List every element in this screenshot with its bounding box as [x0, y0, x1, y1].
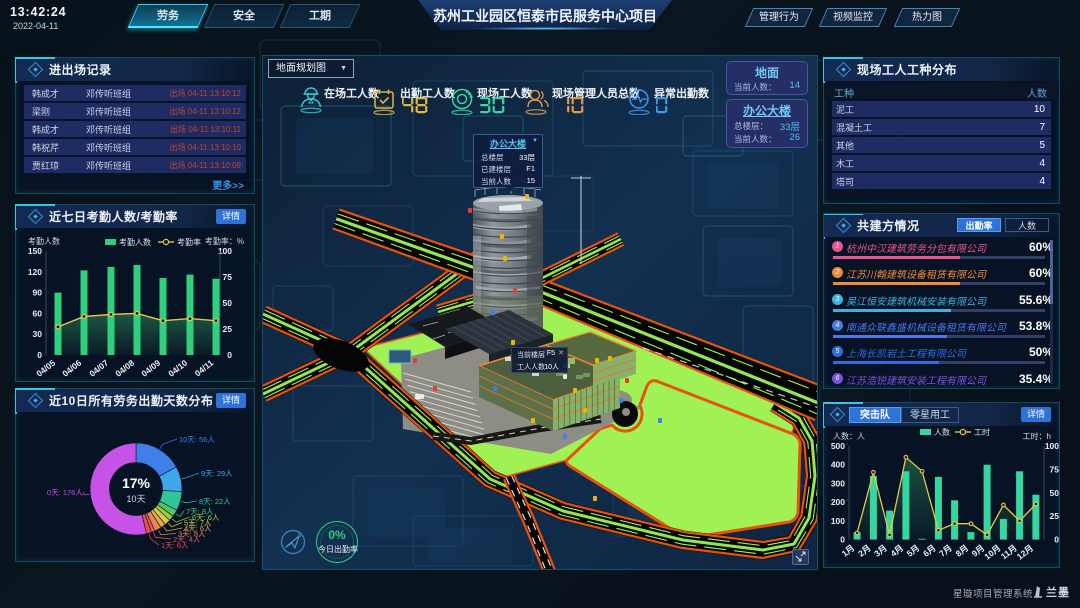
svg-text:1天: 6人: 1天: 6人 — [161, 541, 189, 550]
svg-text:0: 0 — [37, 350, 42, 360]
svg-text:人数：人: 人数：人 — [833, 431, 865, 441]
svg-text:400: 400 — [831, 460, 845, 470]
svg-text:考勤人数: 考勤人数 — [119, 237, 151, 247]
svg-text:50: 50 — [1050, 488, 1059, 498]
svg-text:考勤人数: 考勤人数 — [28, 236, 60, 246]
svg-text:04/06: 04/06 — [60, 358, 83, 379]
svg-text:7月: 7月 — [937, 543, 954, 559]
svg-text:120: 120 — [28, 267, 42, 277]
svg-text:0: 0 — [227, 350, 232, 360]
svg-text:9天: 29人: 9天: 29人 — [201, 469, 233, 478]
svg-text:0: 0 — [840, 535, 845, 545]
svg-text:0天: 176人: 0天: 176人 — [47, 488, 83, 497]
svg-text:150: 150 — [28, 246, 42, 256]
svg-text:12月: 12月 — [1015, 543, 1035, 562]
svg-text:100: 100 — [831, 516, 845, 526]
svg-text:8月: 8月 — [954, 543, 971, 559]
svg-text:300: 300 — [831, 478, 845, 488]
svg-text:人数: 人数 — [934, 427, 950, 437]
svg-text:5月: 5月 — [905, 543, 922, 559]
svg-text:0: 0 — [1054, 535, 1059, 545]
svg-text:200: 200 — [831, 497, 845, 507]
svg-text:100: 100 — [1045, 441, 1059, 451]
svg-text:04/07: 04/07 — [87, 358, 110, 379]
svg-text:6月: 6月 — [921, 543, 938, 559]
svg-text:30: 30 — [33, 329, 43, 339]
svg-text:考勤率：%: 考勤率：% — [205, 236, 244, 246]
svg-text:50: 50 — [223, 298, 233, 308]
svg-text:10天: 56人: 10天: 56人 — [179, 435, 215, 444]
svg-text:10天: 10天 — [126, 494, 145, 504]
svg-text:60: 60 — [33, 308, 43, 318]
svg-text:04/05: 04/05 — [34, 358, 57, 379]
svg-text:1月: 1月 — [840, 543, 857, 559]
svg-text:04/11: 04/11 — [193, 358, 216, 379]
svg-text:8天: 22人: 8天: 22人 — [199, 497, 231, 506]
svg-text:工时: 工时 — [974, 427, 990, 437]
svg-text:2月: 2月 — [856, 543, 873, 559]
svg-text:工时：h: 工时：h — [1023, 431, 1051, 441]
svg-text:75: 75 — [1050, 464, 1059, 474]
svg-text:4月: 4月 — [889, 543, 906, 559]
svg-text:考勤率: 考勤率 — [177, 237, 201, 247]
svg-text:500: 500 — [831, 441, 845, 451]
svg-text:04/10: 04/10 — [166, 358, 189, 379]
svg-text:N: N — [298, 533, 302, 539]
svg-text:25: 25 — [1050, 511, 1059, 521]
svg-text:04/08: 04/08 — [113, 358, 136, 379]
svg-text:3月: 3月 — [872, 543, 889, 559]
svg-text:75: 75 — [223, 272, 233, 282]
svg-text:17%: 17% — [122, 475, 151, 491]
svg-text:25: 25 — [223, 324, 233, 334]
svg-text:04/09: 04/09 — [139, 358, 162, 379]
svg-text:90: 90 — [33, 288, 43, 298]
